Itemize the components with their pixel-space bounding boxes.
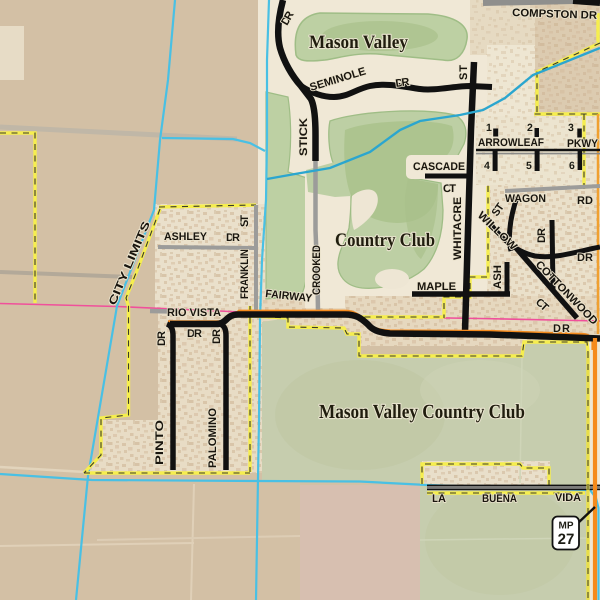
- svg-text:DR: DR: [226, 232, 240, 244]
- svg-text:ST: ST: [458, 65, 470, 80]
- svg-text:WAGON: WAGON: [505, 193, 546, 205]
- svg-text:1: 1: [486, 122, 492, 134]
- svg-text:4: 4: [484, 160, 490, 172]
- svg-text:DR: DR: [156, 331, 168, 346]
- svg-text:MAPLE: MAPLE: [417, 281, 456, 293]
- svg-text:ASHLEY: ASHLEY: [164, 231, 208, 243]
- svg-text:CASCADE: CASCADE: [413, 161, 465, 173]
- svg-text:LA: LA: [432, 493, 446, 505]
- svg-text:STICK: STICK: [298, 118, 310, 156]
- svg-text:Country Club: Country Club: [335, 230, 435, 251]
- svg-text:BUENA: BUENA: [482, 493, 517, 505]
- svg-text:DR: DR: [187, 328, 202, 340]
- svg-text:ASH: ASH: [492, 265, 504, 289]
- svg-text:CT: CT: [443, 183, 456, 195]
- svg-text:DR: DR: [536, 228, 548, 243]
- svg-text:DR: DR: [577, 252, 593, 264]
- svg-text:Mason Valley Country Club: Mason Valley Country Club: [319, 401, 525, 423]
- svg-text:Mason Valley: Mason Valley: [309, 32, 408, 53]
- svg-text:PALOMINO: PALOMINO: [207, 408, 219, 468]
- svg-text:DR: DR: [211, 329, 223, 344]
- svg-text:FRANKLIN: FRANKLIN: [239, 249, 251, 299]
- svg-text:2: 2: [527, 122, 533, 134]
- svg-text:3: 3: [568, 122, 574, 134]
- svg-text:6: 6: [569, 160, 575, 172]
- svg-text:DR: DR: [395, 76, 411, 90]
- svg-text:CROOKED: CROOKED: [311, 245, 323, 295]
- svg-text:ST: ST: [239, 215, 251, 227]
- svg-text:RIO VISTA: RIO VISTA: [167, 307, 221, 319]
- svg-text:27: 27: [558, 531, 575, 548]
- svg-text:RD: RD: [577, 195, 593, 207]
- svg-text:5: 5: [526, 160, 532, 172]
- svg-text:DR: DR: [553, 323, 570, 335]
- svg-text:MP: MP: [559, 521, 574, 532]
- svg-text:PKWY: PKWY: [567, 138, 599, 150]
- svg-text:WHITACRE: WHITACRE: [452, 197, 464, 260]
- svg-text:ARROWLEAF: ARROWLEAF: [478, 137, 544, 149]
- svg-text:PINTO: PINTO: [154, 419, 166, 465]
- svg-text:VIDA: VIDA: [555, 492, 581, 504]
